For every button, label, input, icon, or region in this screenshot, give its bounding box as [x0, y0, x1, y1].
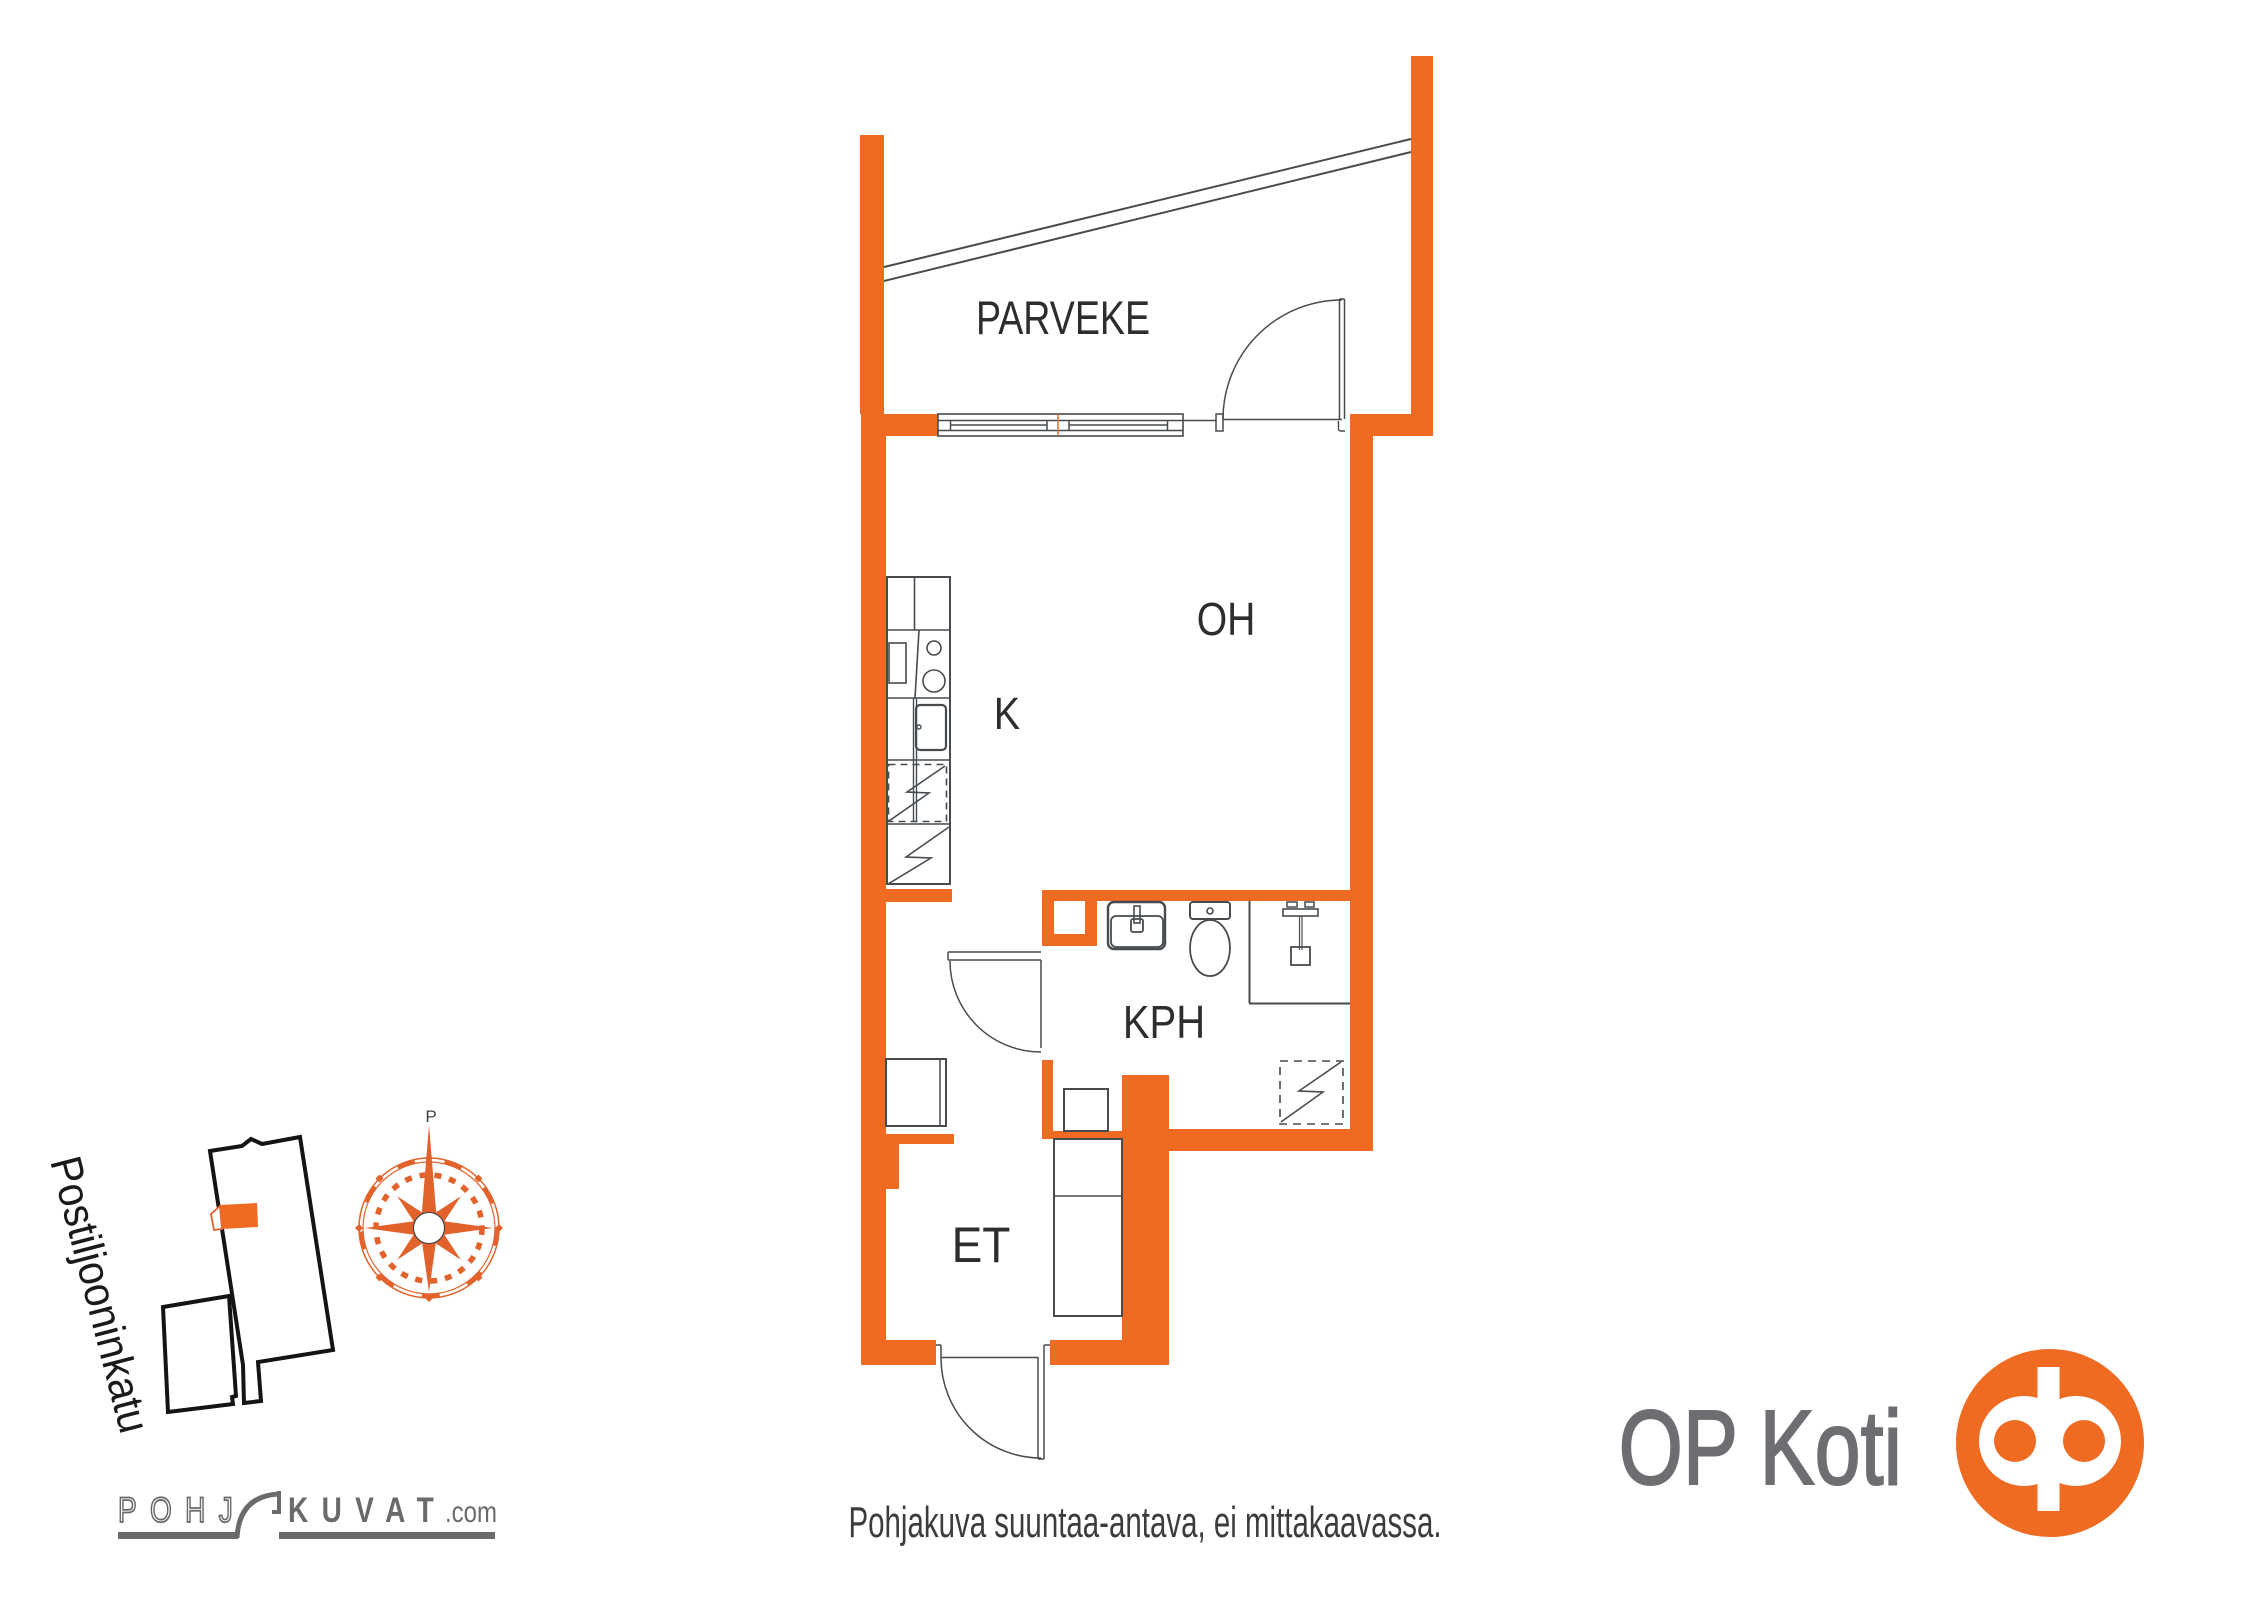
svg-text:P: P	[425, 1107, 436, 1126]
svg-text:ET: ET	[952, 1218, 1011, 1273]
svg-text:OH: OH	[1197, 594, 1256, 646]
svg-text:KPH: KPH	[1123, 997, 1205, 1048]
svg-text:OP Koti: OP Koti	[1619, 1389, 1902, 1507]
svg-text:POHJ: POHJ	[118, 1490, 246, 1530]
svg-text:KUVAT: KUVAT	[288, 1490, 447, 1530]
svg-text:PARVEKE: PARVEKE	[976, 292, 1150, 345]
svg-text:K: K	[994, 689, 1020, 739]
svg-text:Pohjakuva suuntaa-antava, ei m: Pohjakuva suuntaa-antava, ei mittakaavas…	[848, 1497, 1441, 1546]
svg-text:.com: .com	[445, 1494, 497, 1528]
